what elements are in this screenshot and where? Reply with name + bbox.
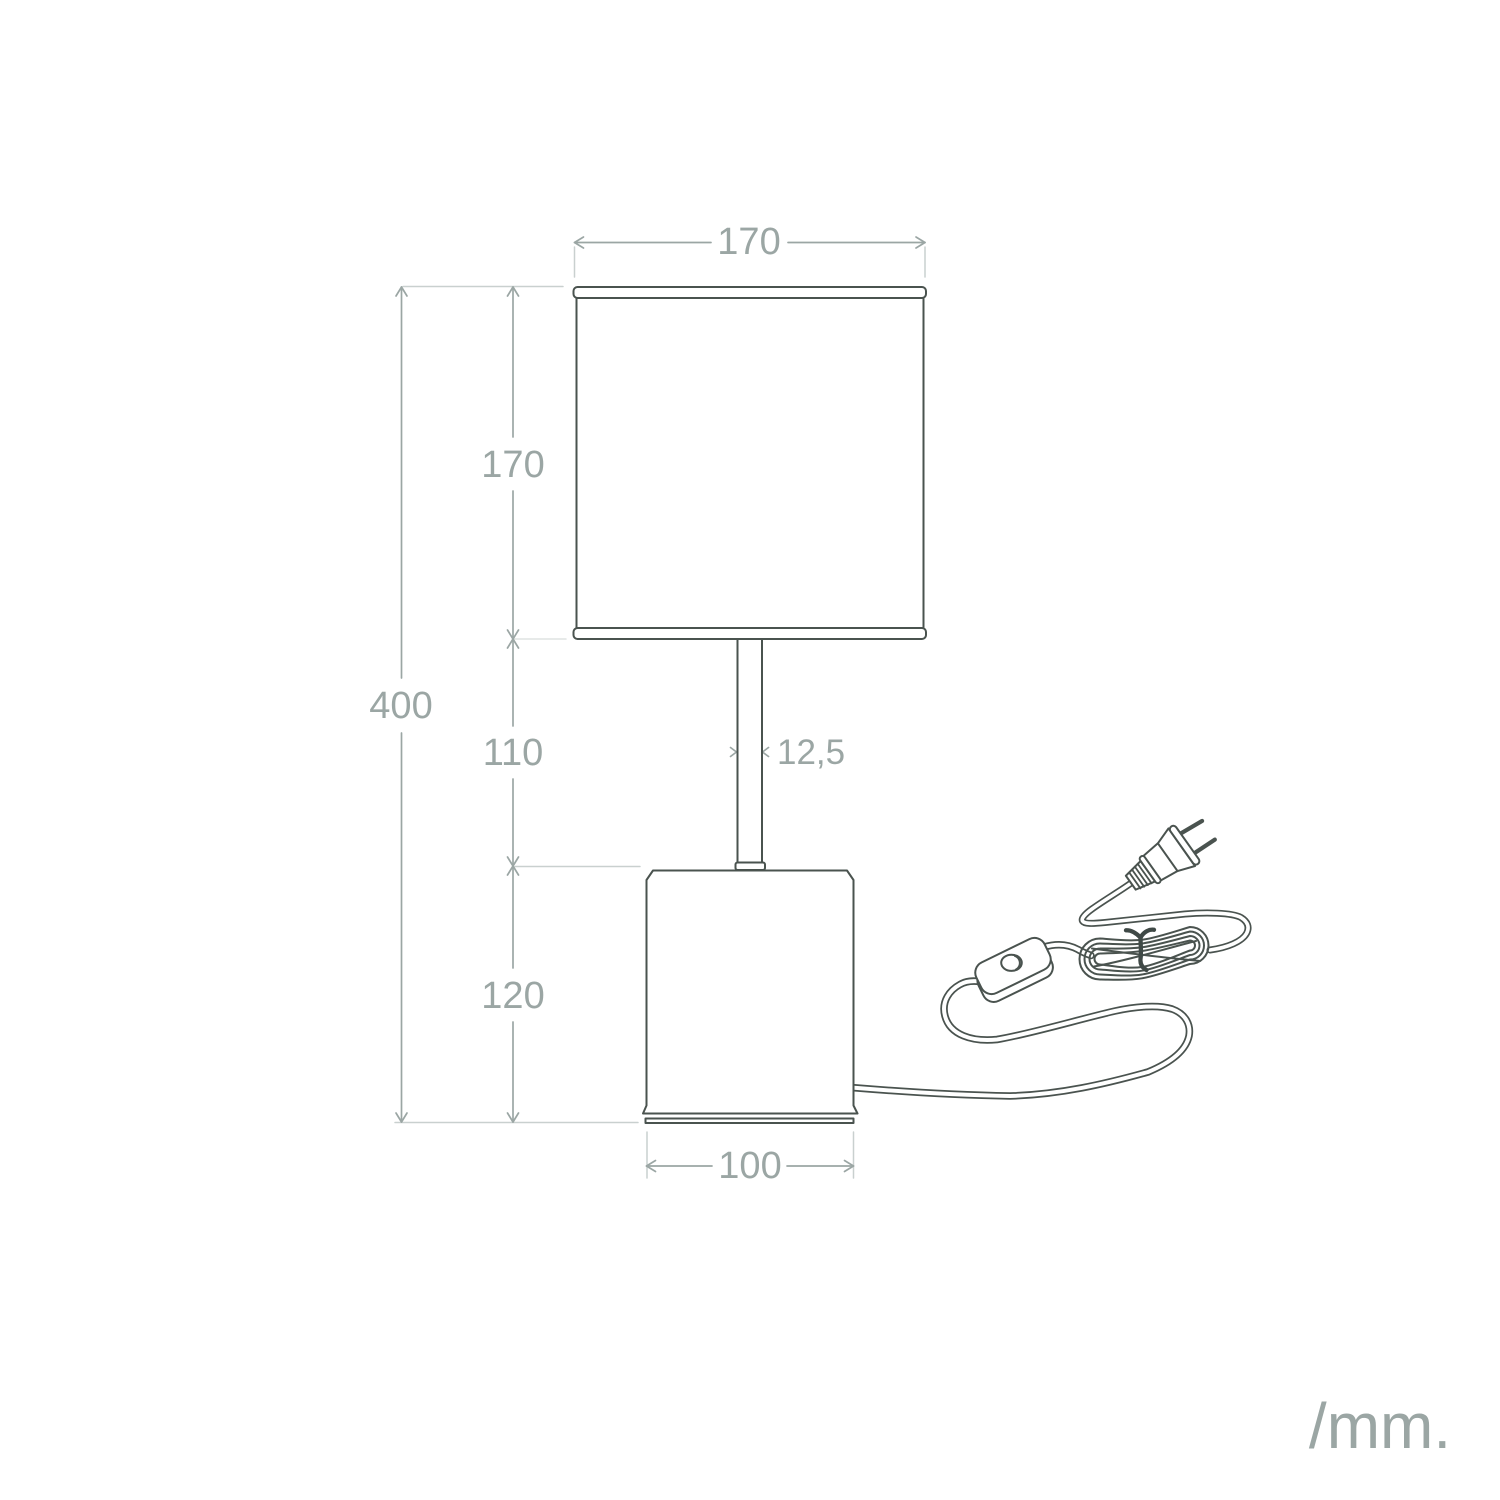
svg-text:110: 110 — [483, 732, 544, 774]
svg-text:400: 400 — [369, 685, 432, 727]
svg-text:/mm.: /mm. — [1309, 1390, 1451, 1462]
svg-text:170: 170 — [717, 221, 780, 263]
svg-text:120: 120 — [481, 975, 544, 1017]
svg-text:12,5: 12,5 — [777, 733, 845, 772]
svg-text:100: 100 — [718, 1145, 781, 1187]
svg-text:170: 170 — [481, 444, 544, 486]
